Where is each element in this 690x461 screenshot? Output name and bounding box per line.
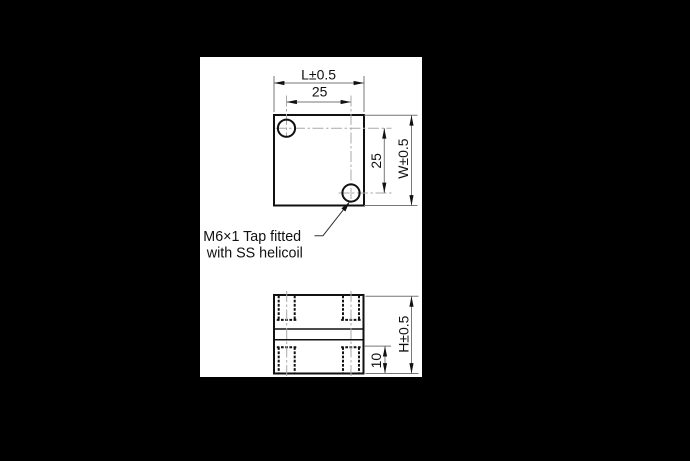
svg-text:10: 10 (368, 353, 384, 369)
svg-text:M6×1 Tap fitted: M6×1 Tap fitted (203, 229, 301, 245)
svg-text:L±0.5: L±0.5 (301, 67, 336, 83)
svg-text:25: 25 (368, 153, 384, 169)
svg-text:with SS helicoil: with SS helicoil (206, 246, 303, 262)
svg-text:H±0.5: H±0.5 (396, 315, 412, 352)
svg-text:25: 25 (312, 84, 328, 100)
svg-text:W±0.5: W±0.5 (395, 138, 411, 179)
